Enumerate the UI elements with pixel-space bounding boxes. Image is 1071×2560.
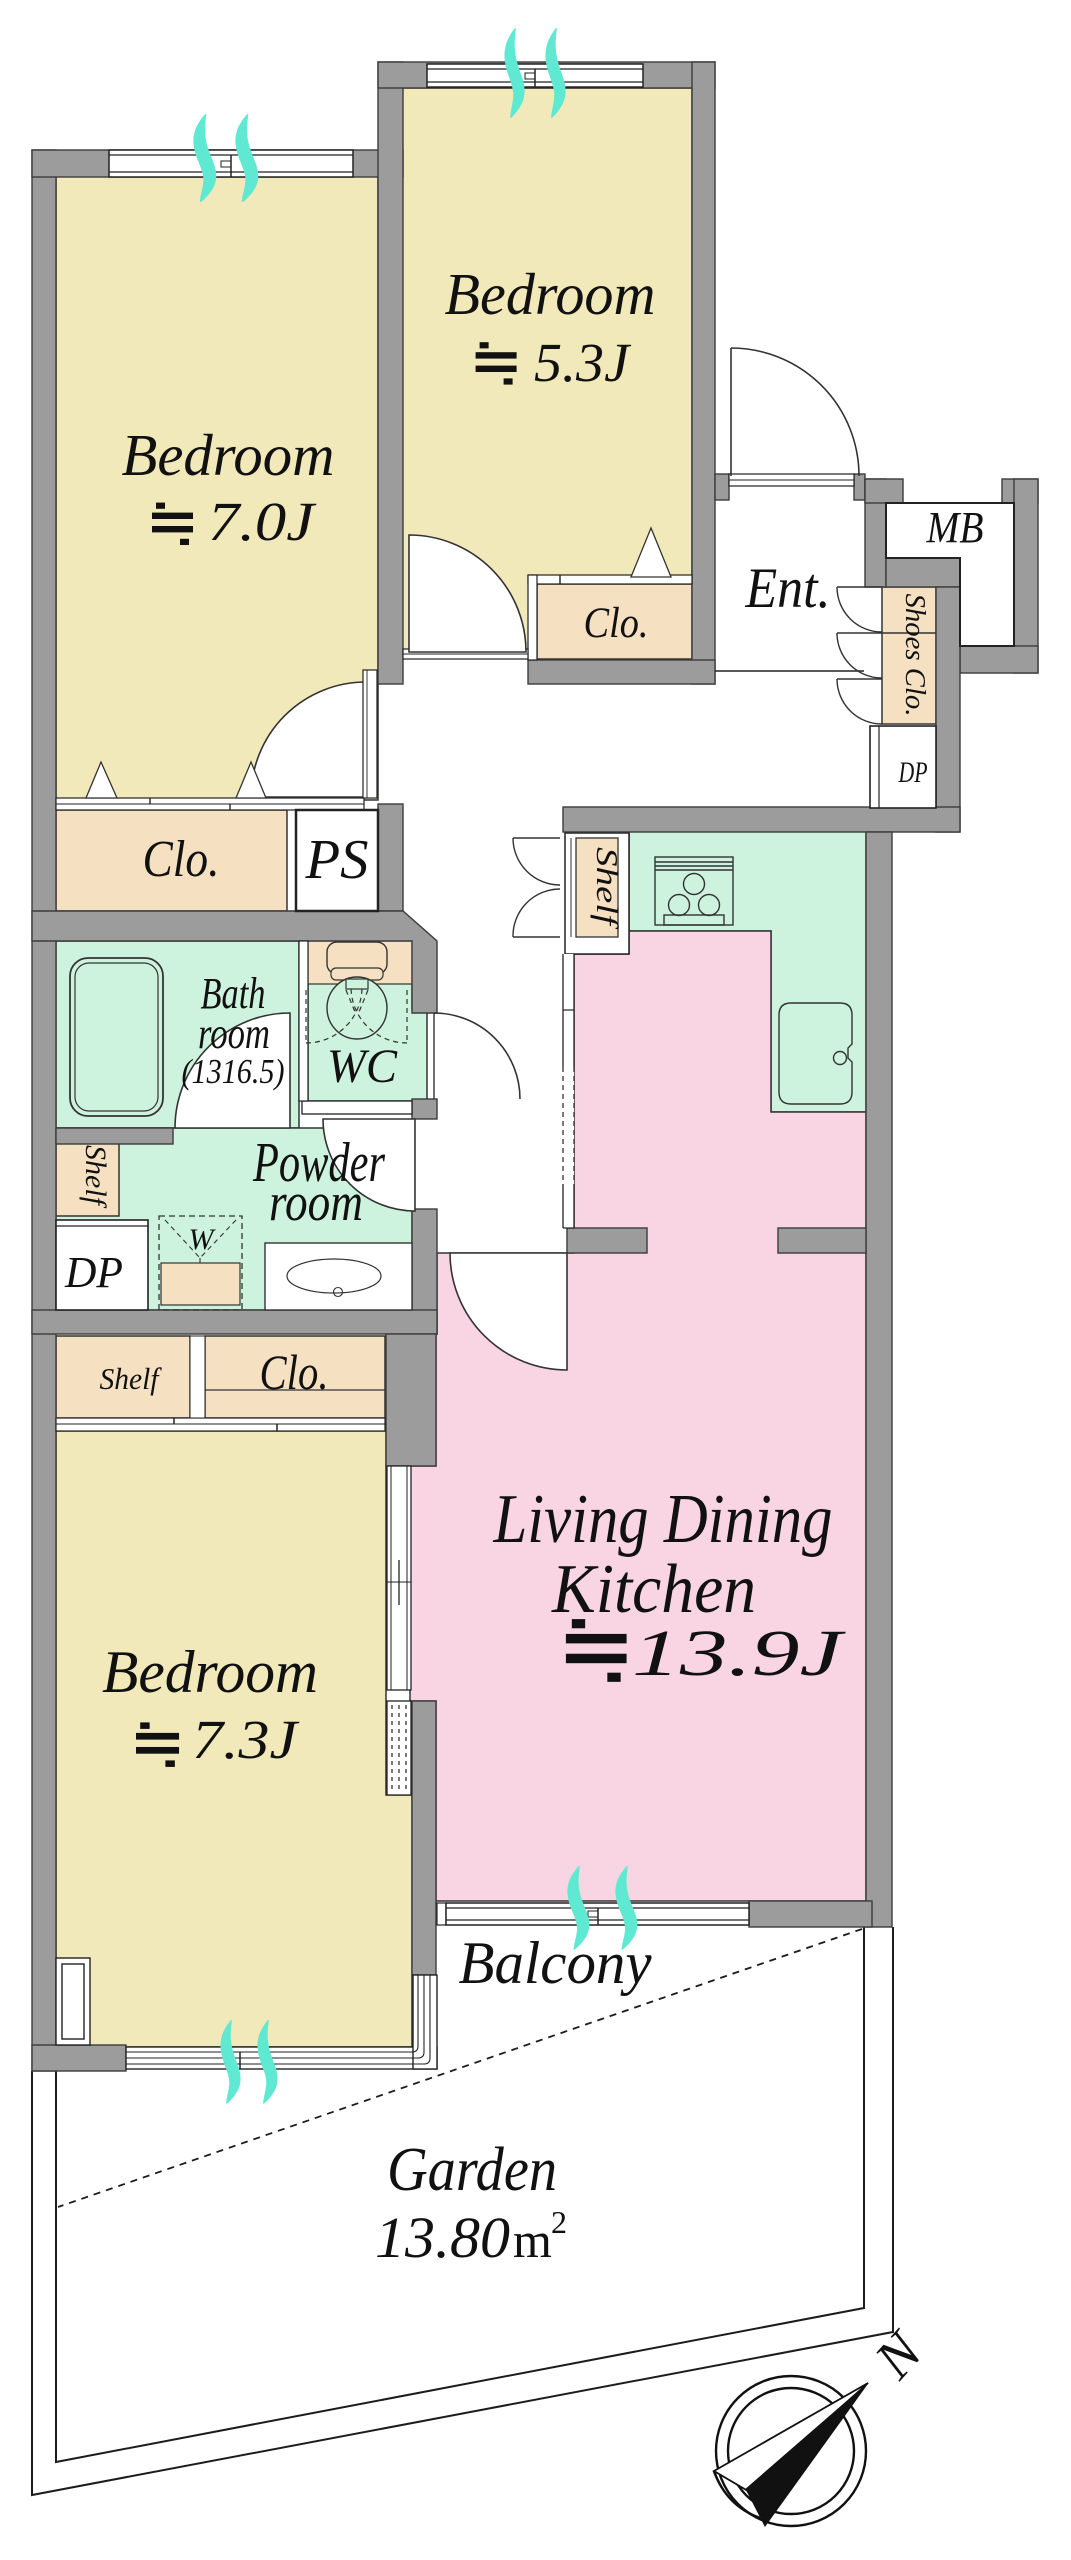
svg-text:DP: DP: [64, 1248, 123, 1297]
svg-text:7.3J: 7.3J: [192, 1709, 300, 1770]
svg-text:Ent.: Ent.: [745, 557, 831, 620]
svg-text:5.3J: 5.3J: [534, 332, 632, 393]
svg-text:Living Dining: Living Dining: [493, 1481, 833, 1558]
svg-text:Garden: Garden: [387, 2136, 557, 2204]
svg-text:(1316.5): (1316.5): [182, 1052, 285, 1091]
svg-text:2: 2: [551, 2204, 567, 2240]
svg-text:Clo.: Clo.: [584, 600, 649, 647]
svg-text:Shelf: Shelf: [79, 1145, 112, 1209]
svg-text:Shelf: Shelf: [590, 847, 625, 931]
svg-text:WC: WC: [327, 1040, 398, 1093]
svg-text:DP: DP: [898, 756, 928, 789]
svg-text:Shelf: Shelf: [100, 1361, 163, 1396]
svg-text:13.80: 13.80: [375, 2205, 510, 2270]
svg-text:Bedroom: Bedroom: [445, 261, 656, 327]
svg-text:Bedroom: Bedroom: [102, 1639, 318, 1705]
svg-text:Clo.: Clo.: [260, 1344, 329, 1400]
svg-text:room: room: [269, 1172, 363, 1232]
svg-text:7.0J: 7.0J: [208, 491, 317, 552]
svg-text:Bedroom: Bedroom: [122, 422, 335, 488]
svg-text:13.9J: 13.9J: [632, 1617, 846, 1690]
svg-text:Clo.: Clo.: [143, 831, 220, 888]
svg-text:PS: PS: [304, 829, 368, 891]
svg-text:Shoes Clo.: Shoes Clo.: [899, 594, 931, 717]
svg-text:W: W: [189, 1223, 217, 1256]
svg-text:Balcony: Balcony: [459, 1930, 652, 1996]
svg-text:MB: MB: [926, 503, 984, 552]
svg-text:m: m: [513, 2212, 552, 2268]
svg-text:room: room: [198, 1009, 270, 1058]
